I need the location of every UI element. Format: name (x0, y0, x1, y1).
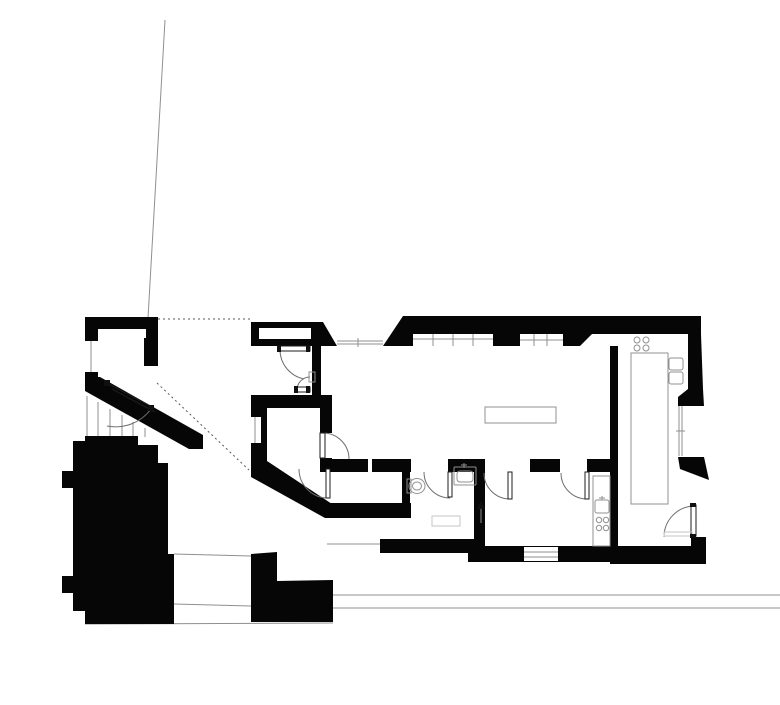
hall-band-seg-b (372, 459, 411, 472)
kitchen-west-column (610, 346, 618, 564)
existing-building-mass (62, 436, 174, 624)
vestibule-door-leaf (280, 346, 310, 351)
vestibule-door-cap-2 (306, 345, 310, 352)
bottom-band-mid (380, 539, 477, 553)
bedroom-west-window (251, 417, 261, 443)
top-wall-right (520, 316, 701, 334)
storage-bottom-band (325, 503, 411, 518)
south-room-door-leaf-1 (508, 472, 512, 499)
kitchen-door-cap-1 (690, 503, 696, 507)
south-window (524, 547, 558, 561)
floor-plan-image (40, 16, 780, 689)
entry-door-hinge-cap (104, 380, 110, 386)
vestibule-inner-door-cap-1 (294, 386, 298, 393)
vestibule-bottom-band (251, 395, 332, 408)
bedroom-door-leaf (320, 433, 325, 458)
vestibule-inner-door-cap-2 (306, 386, 310, 393)
entry-door-latch-cap (148, 405, 154, 411)
top-wall-window (259, 328, 311, 339)
wc-door-leaf (448, 472, 452, 497)
hall-band-seg-d (530, 459, 560, 472)
lower-hall-door-leaf (326, 469, 330, 498)
kitchen-door-leaf (691, 505, 696, 536)
vestibule-door-cap-1 (277, 345, 281, 352)
floor-plan-figure (40, 16, 780, 689)
bedroom-right-column-upper (320, 408, 332, 433)
kitchen-door-cap-2 (690, 534, 696, 538)
south-room-door-leaf-2 (585, 472, 589, 499)
right-wall-upper (688, 334, 703, 389)
entry-wall-notch (139, 329, 146, 338)
